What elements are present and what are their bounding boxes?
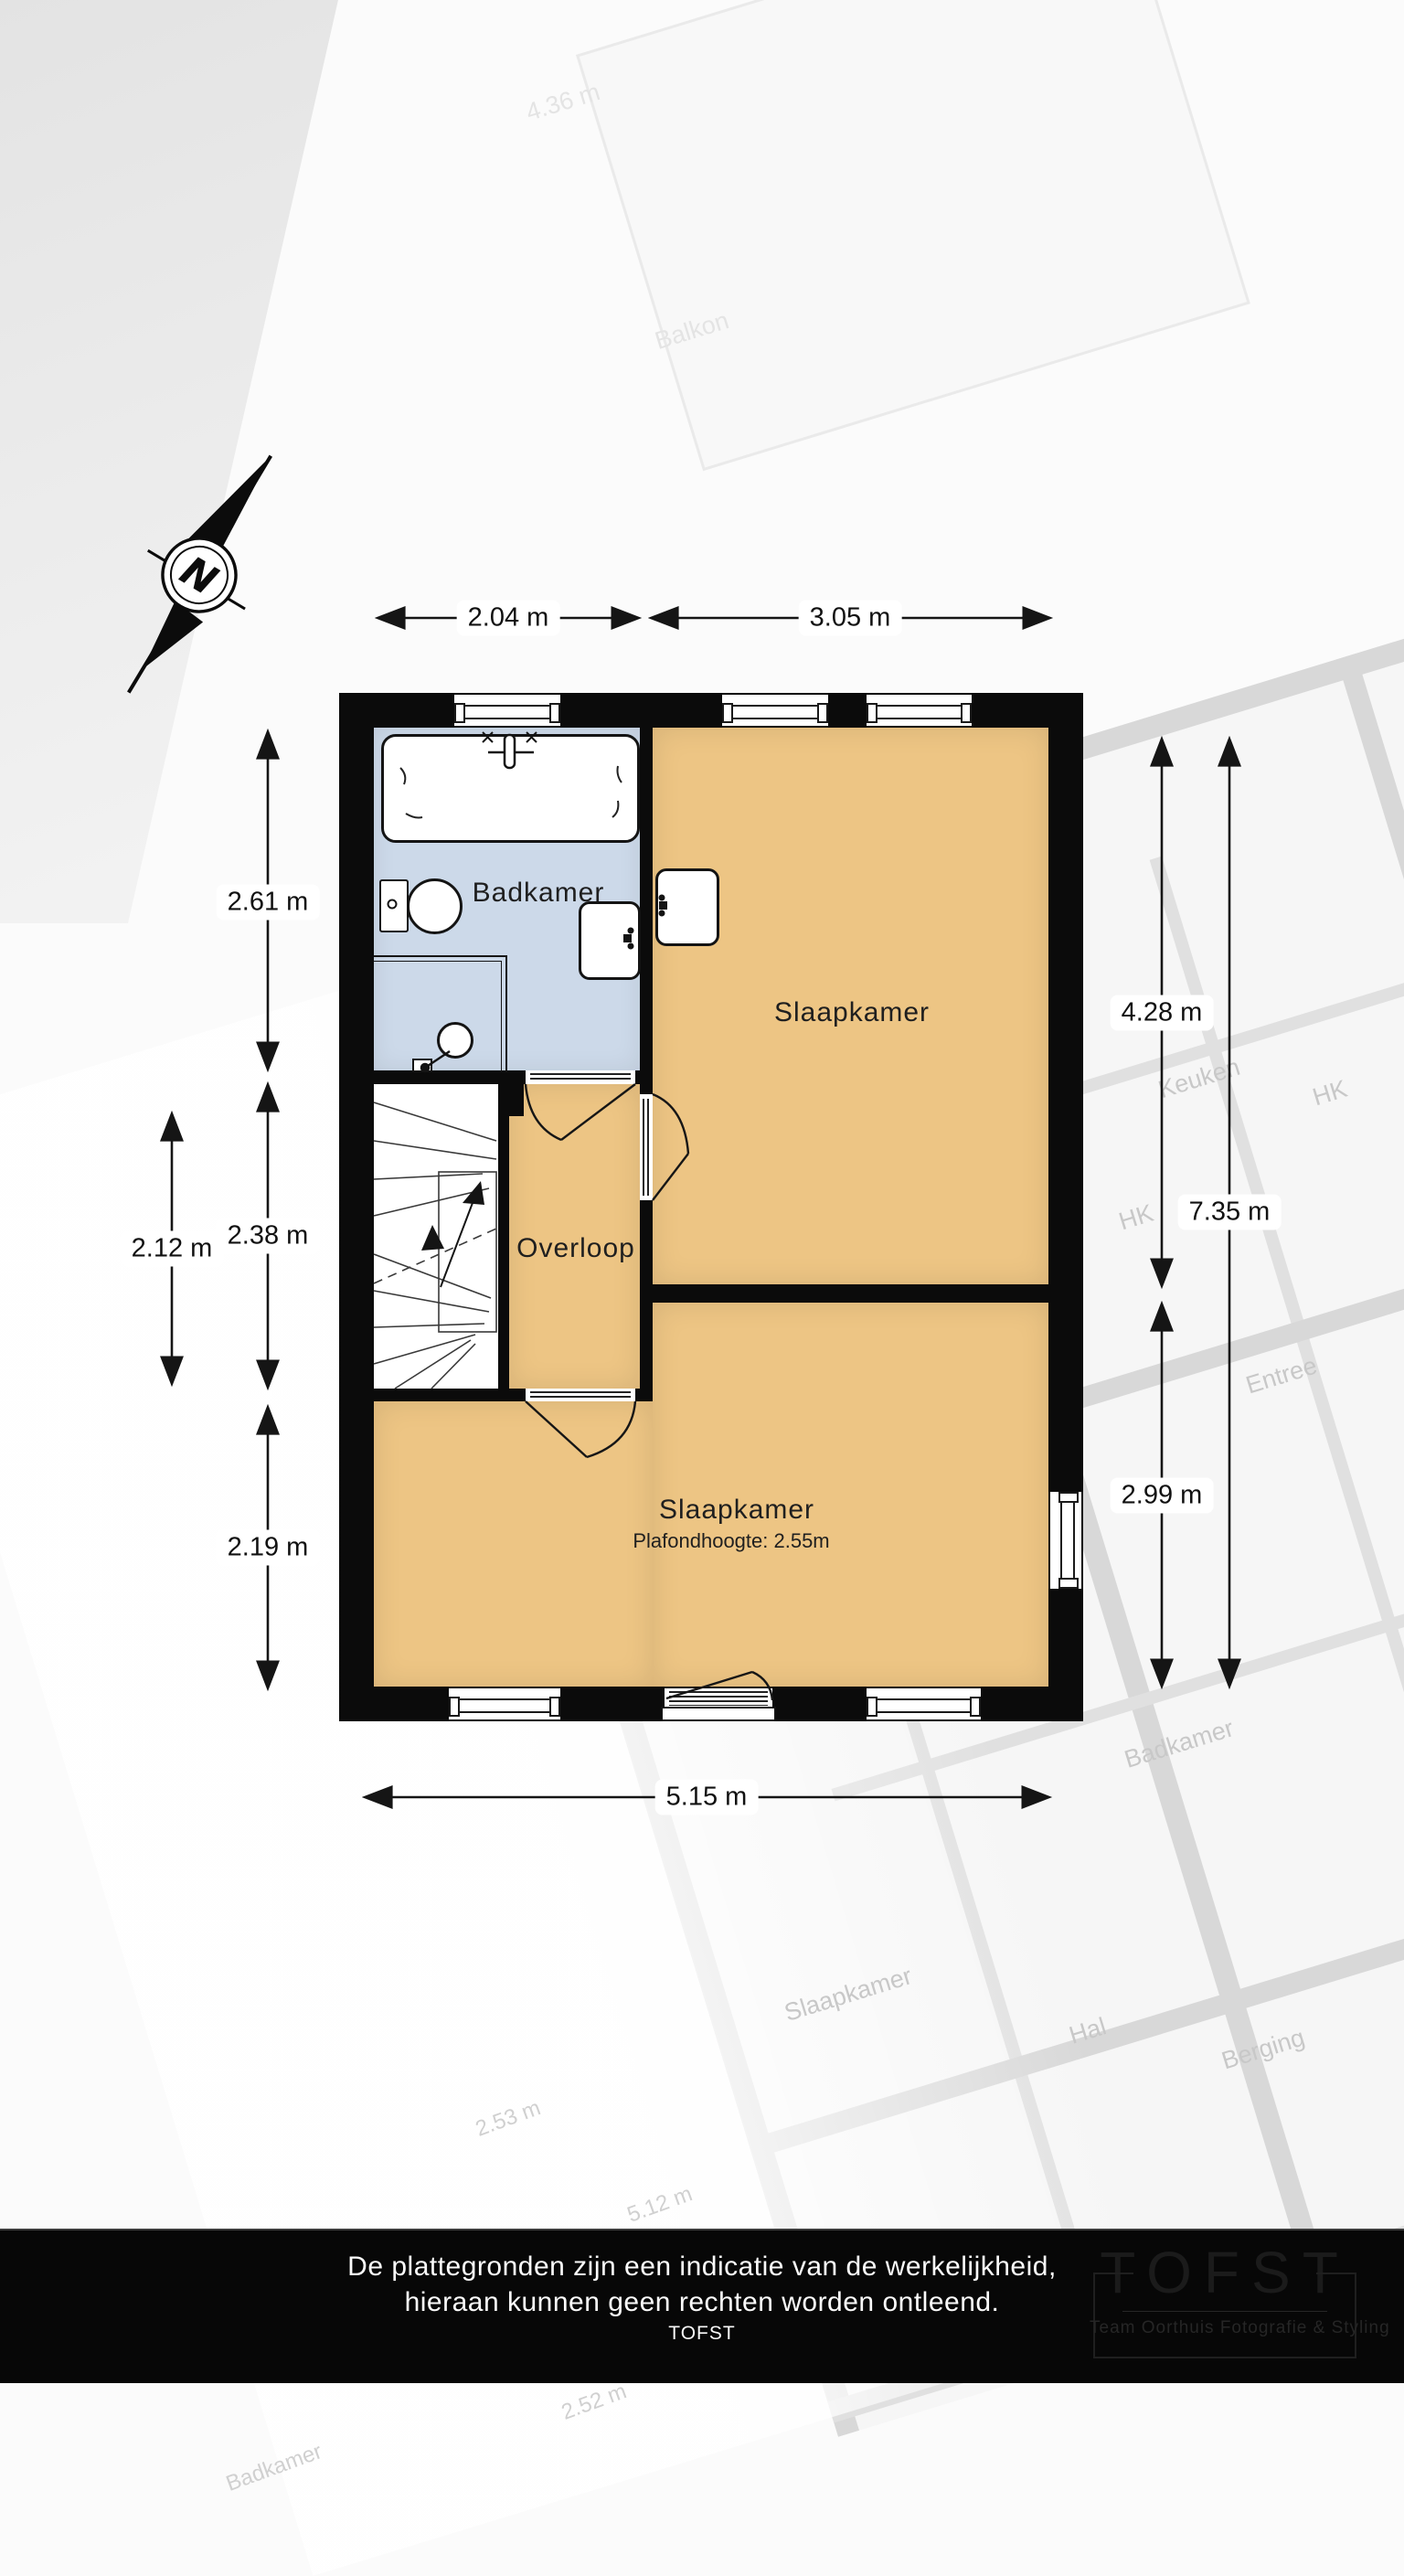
footer-disclaimer-bar: De plattegronden zijn een indicatie van … [0, 2229, 1404, 2383]
door-arc-exterior [752, 1672, 772, 1700]
room-label-badkamer: Badkamer [473, 878, 605, 909]
dim-label-top-2: 3.05 m [799, 601, 902, 636]
dim-label-left-261: 2.61 m [217, 885, 320, 921]
door-line-slaapkamer-top [653, 1154, 688, 1200]
dim-label-left-238: 2.38 m [217, 1219, 320, 1254]
tofst-logo-divider [1122, 2311, 1327, 2312]
dim-label-left-219: 2.19 m [217, 1530, 320, 1566]
tofst-logo-subtitle: Team Oorthuis Fotografie & Styling [1090, 2318, 1360, 2338]
dim-label-right-735: 7.35 m [1178, 1195, 1282, 1230]
room-label-slaapkamer-bottom: Slaapkamer [659, 1495, 814, 1526]
room-note-ceiling-height: Plafondhoogte: 2.55m [633, 1529, 829, 1553]
door-line-badkamer [561, 1084, 635, 1140]
door-swings [526, 1084, 772, 1700]
shower-stand-icon [421, 1051, 450, 1071]
door-arc-slaapkamer-bottom [587, 1401, 635, 1457]
compass-icon: N [80, 427, 320, 722]
room-label-slaapkamer-top: Slaapkamer [774, 997, 930, 1028]
dimension-lines [172, 618, 1229, 1797]
bathtub-faucet-icon [483, 732, 537, 768]
door-arc-slaapkamer-top [653, 1094, 688, 1154]
dim-label-left-212: 2.12 m [121, 1231, 224, 1267]
door-line-slaapkamer-bottom [526, 1401, 587, 1457]
toilet-flush-icon [388, 900, 397, 909]
tofst-logo-frame [1093, 2273, 1356, 2358]
dim-label-top-1: 2.04 m [457, 601, 560, 636]
dim-label-bottom-515: 5.15 m [655, 1780, 759, 1815]
tofst-logo: TOFST Team Oorthuis Fotografie & Styling [1090, 2243, 1360, 2362]
compass-south-blade [136, 601, 205, 683]
bathtub-corner-ticks [400, 766, 622, 818]
washbasin-taps [623, 895, 667, 950]
dim-label-right-428: 4.28 m [1111, 995, 1214, 1031]
stair-arrow-up [463, 1181, 484, 1205]
door-line-exterior [666, 1672, 752, 1698]
door-arc-badkamer [526, 1084, 561, 1140]
dim-label-right-299: 2.99 m [1111, 1478, 1214, 1514]
stair-arrow-mid [421, 1225, 444, 1251]
room-label-overloop: Overloop [516, 1233, 635, 1264]
